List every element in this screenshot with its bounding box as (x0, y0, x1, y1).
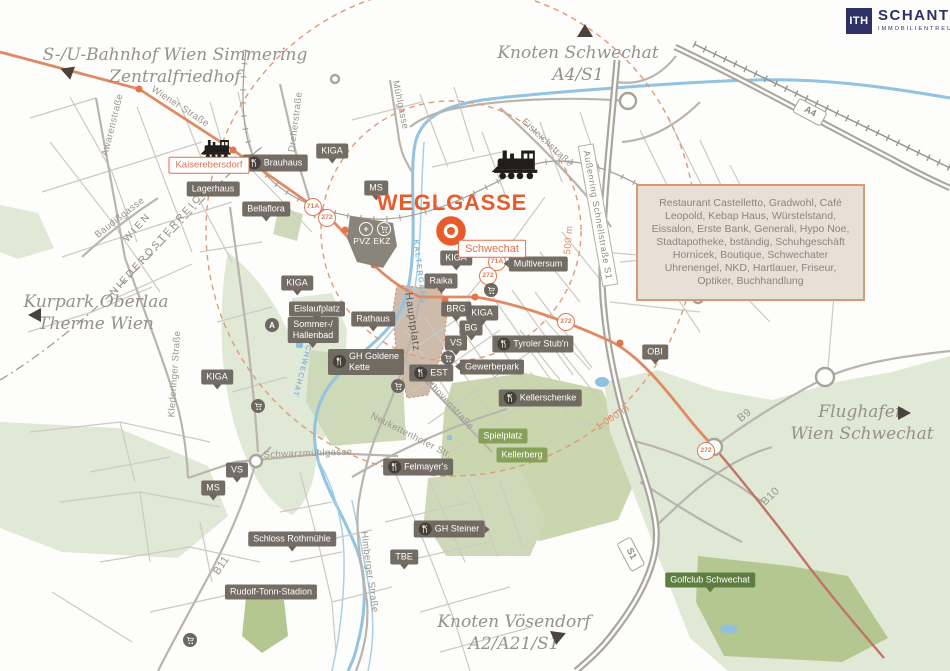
map-label-kaiserebersdorf: Kaiserebersdorf (168, 157, 249, 174)
label-text: Gewerbepark (465, 362, 519, 372)
map-label-sommer-hallenbad: Sommer-/ Hallenbad (288, 317, 339, 343)
map-canvas: WEGLGASSE S-/U-Bahnhof Wien Simmering Ze… (0, 0, 950, 671)
label-text: S1 (624, 546, 639, 561)
direction-simmering-line2: Zentralfriedhof (43, 67, 308, 89)
map-label-vs-1: VS (445, 336, 467, 351)
label-text: Schwarzmühlgasse (263, 447, 352, 461)
direction-simmering-line1: S-/U-Bahnhof Wien Simmering (43, 45, 308, 67)
arrow-up-icon (577, 24, 593, 37)
map-label-tbe: TBE (390, 550, 418, 565)
label-text: OBI (647, 347, 663, 357)
map-label-kiga-2: KIGA (281, 276, 313, 291)
label-text: BRG (446, 304, 466, 314)
restaurant-icon (248, 157, 261, 170)
brand-logo: ITH SCHANTL IMMOBILIENTREUHAND (846, 8, 950, 34)
restaurant-icon (419, 523, 432, 536)
shopping-cart-icon (391, 379, 405, 393)
label-text: 272 (321, 214, 332, 222)
label-text: KIGA (286, 278, 308, 288)
shopping-cart-icon (183, 633, 197, 647)
map-label-kiga-4: KIGA (466, 306, 498, 321)
map-label-multiversum: Multiversum (509, 257, 568, 272)
property-title: WEGLGASSE (377, 190, 527, 216)
label-text: Bellaflora (247, 204, 285, 214)
label-text: Raika (429, 276, 452, 286)
map-label-kellerschenke: Kellerschenke (499, 390, 582, 407)
label-text: 272 (700, 447, 711, 455)
map-label-felmayers: Felmayer's (383, 459, 453, 476)
map-label-kiga-3: KIGA (201, 370, 233, 385)
map-label-eislaufplatz: Eislaufplatz (289, 302, 345, 317)
map-label-est: EST (409, 365, 453, 382)
label-text: 272 (560, 318, 571, 326)
label-text: Kellerberg (501, 450, 542, 460)
label-text: Eislaufplatz (294, 304, 340, 314)
plus-icon: + (359, 222, 373, 236)
map-label-tyroler-stubn: Tyroler Stub'n (492, 336, 573, 353)
label-text: Spielplatz (483, 431, 522, 441)
label-text: Schloss Rothmühle (253, 534, 331, 544)
label-text: 71A (491, 258, 503, 266)
restaurant-icon (497, 338, 510, 351)
label-text: Multiversum (514, 259, 563, 269)
label-text: TBE (395, 552, 413, 562)
label-text: GH Steiner (435, 524, 480, 535)
direction-kurpark-line1: Kurpark Oberlaa (24, 292, 169, 314)
brand-logo-icon: ITH (846, 8, 872, 34)
map-label-bg: BG (459, 321, 482, 336)
map-label-raika: Raika (424, 274, 457, 289)
arrow-left-icon (28, 308, 41, 322)
label-text: Felmayer's (404, 462, 448, 473)
map-label-golfclub-schwechat: Golfclub Schwechat (665, 573, 755, 588)
label-text: KIGA (471, 308, 493, 318)
road-badge-272-3: 272 (557, 313, 575, 331)
label-text: PVZ EKZ (353, 236, 391, 246)
direction-knoten-schwechat: Knoten Schwechat A4/S1 (497, 43, 658, 86)
label-text: VS (231, 465, 243, 475)
direction-voesendorf: Knoten Vösendorf A2/A21/S1 (437, 612, 590, 655)
label-text: EST (430, 368, 448, 379)
label-text: BG (464, 323, 477, 333)
direction-kurpark: Kurpark Oberlaa Therme Wien (24, 292, 169, 335)
restaurant-icon (333, 356, 346, 369)
junction-dots (136, 86, 624, 347)
property-marker (440, 220, 462, 242)
direction-flughafen: Flughafen Wien Schwechat (790, 402, 933, 445)
map-label-vs-2: VS (226, 463, 248, 478)
arrow-right-icon (898, 406, 911, 420)
label-text: Tyroler Stub'n (513, 339, 568, 350)
map-label-schwechat: Schwechat (458, 240, 526, 258)
direction-voesendorf-line1: Knoten Vösendorf (437, 612, 590, 634)
label-text: Schwechat (465, 242, 519, 254)
label-text: 272 (482, 272, 493, 280)
map-label-bellaflora: Bellaflora (242, 202, 290, 217)
shopping-cart-icon (251, 399, 265, 413)
label-text: KIGA (206, 372, 228, 382)
map-label-brauhaus: Brauhaus (243, 155, 308, 172)
road-badge-272-4: 272 (697, 442, 715, 460)
map-label-gh-steiner: GH Steiner (414, 521, 485, 538)
label-text: Brauhaus (264, 158, 303, 169)
label-text: A4 (802, 104, 818, 119)
label-text: Lagerhaus (192, 184, 235, 194)
direction-knoten-schwechat-line2: A4/S1 (497, 65, 658, 87)
label-text: 71A (307, 203, 319, 211)
label-text: Kaiserebersdorf (175, 159, 242, 170)
restaurant-icon (414, 367, 427, 380)
direction-simmering: S-/U-Bahnhof Wien Simmering Zentralfried… (43, 45, 308, 88)
direction-voesendorf-line2: A2/A21/S1 (437, 634, 590, 656)
map-label-schloss-rothmuehle: Schloss Rothmühle (248, 532, 336, 547)
restaurant-icon (504, 392, 517, 405)
map-label-pvz-ekz: PVZ EKZ (353, 236, 391, 246)
arrow-down-icon (548, 631, 566, 646)
label-text: Rudolf-Tonn-Stadion (230, 587, 312, 597)
label-text: KIGA (321, 146, 343, 156)
label-text: Sommer-/ Hallenbad (293, 319, 334, 340)
shopping-cart-icon (377, 222, 391, 236)
map-label-rudolf-tonn-stadion: Rudolf-Tonn-Stadion (225, 585, 317, 600)
map-label-rathaus: Rathaus (351, 312, 395, 327)
label-text: 500 m (562, 225, 575, 255)
road-badge-272-1: 272 (318, 209, 336, 227)
brand-wordmark: SCHANTL IMMOBILIENTREUHAND (878, 8, 950, 32)
label-text: GH Goldene Kette (349, 351, 399, 373)
map-label-spielplatz: Spielplatz (478, 429, 527, 444)
basemap (0, 0, 950, 671)
map-label-obi: OBI (642, 345, 668, 360)
poi-letter-icon: A (265, 318, 279, 332)
restaurant-icon (388, 461, 401, 474)
shopping-cart-icon (484, 283, 498, 297)
direction-knoten-schwechat-line1: Knoten Schwechat (497, 43, 658, 65)
map-label-lagerhaus: Lagerhaus (187, 182, 240, 197)
map-label-kiga-1: KIGA (316, 144, 348, 159)
map-label-gh-goldene-kette: GH Goldene Kette (328, 349, 404, 375)
label-text: Rathaus (356, 314, 390, 324)
brand-name: SCHANTL (878, 8, 950, 23)
brand-tagline: IMMOBILIENTREUHAND (878, 26, 950, 32)
map-label-ms-2: MS (201, 481, 225, 496)
direction-flughafen-line1: Flughafen (790, 402, 933, 424)
label-text: VS (450, 338, 462, 348)
direction-kurpark-line2: Therme Wien (24, 314, 169, 336)
map-label-gewerbepark: Gewerbepark (460, 360, 524, 375)
map-label-kellerberg: Kellerberg (496, 448, 547, 463)
label-text: Kellerschenke (520, 393, 577, 404)
label-text: MS (206, 483, 220, 493)
label-text: Golfclub Schwechat (670, 575, 750, 585)
amenities-info-box: Restaurant Castelletto, Gradwohl, Café L… (636, 184, 865, 301)
direction-flughafen-line2: Wien Schwechat (790, 424, 933, 446)
